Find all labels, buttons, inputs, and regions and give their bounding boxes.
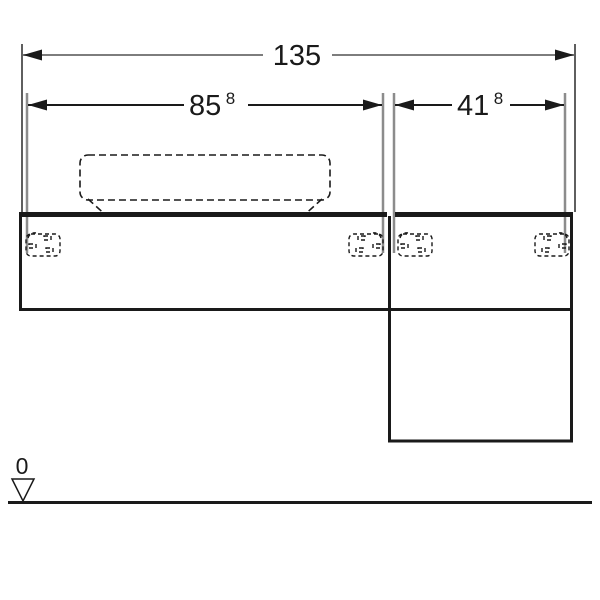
arrowhead-right-icon xyxy=(555,50,574,61)
mounting-bracket-icon xyxy=(398,233,432,256)
left-unit-width-superscript: 8 xyxy=(226,89,235,108)
arrowhead-right-icon xyxy=(363,100,382,111)
left-unit-width-label: 85 8 xyxy=(189,89,235,122)
arrowhead-left-icon xyxy=(23,50,42,61)
datum-triangle-icon xyxy=(12,479,34,501)
arrowhead-right-icon xyxy=(545,100,564,111)
left-unit-width-value: 85 xyxy=(189,90,221,122)
overall-width-label: 135 xyxy=(273,40,321,72)
washbasin-dashed-outline xyxy=(80,155,330,214)
extension-lines xyxy=(22,44,575,253)
technical-drawing-canvas: 135 85 8 41 8 xyxy=(0,0,600,600)
floor-datum: 0 xyxy=(8,453,592,503)
washbasin-body-outline xyxy=(80,155,330,200)
mounting-bracket-icon xyxy=(26,233,60,256)
arrowhead-left-icon xyxy=(395,100,414,111)
right-unit-width-value: 41 xyxy=(457,90,489,122)
right-unit-width-label: 41 8 xyxy=(457,89,503,122)
vanity-dimension-drawing: 135 85 8 41 8 xyxy=(0,0,600,600)
mounting-brackets xyxy=(26,233,569,256)
dimension-left-unit-width: 85 8 xyxy=(28,89,382,122)
dimension-right-unit-width: 41 8 xyxy=(395,89,564,122)
arrowhead-left-icon xyxy=(28,100,47,111)
cabinet-outlines xyxy=(19,213,573,443)
dimension-overall-width: 135 xyxy=(23,40,574,72)
washbasin-left-foot xyxy=(88,199,104,214)
right-unit-width-superscript: 8 xyxy=(494,89,503,108)
mounting-bracket-icon xyxy=(349,233,383,256)
datum-zero-label: 0 xyxy=(16,453,29,479)
washbasin-right-foot xyxy=(306,199,322,214)
